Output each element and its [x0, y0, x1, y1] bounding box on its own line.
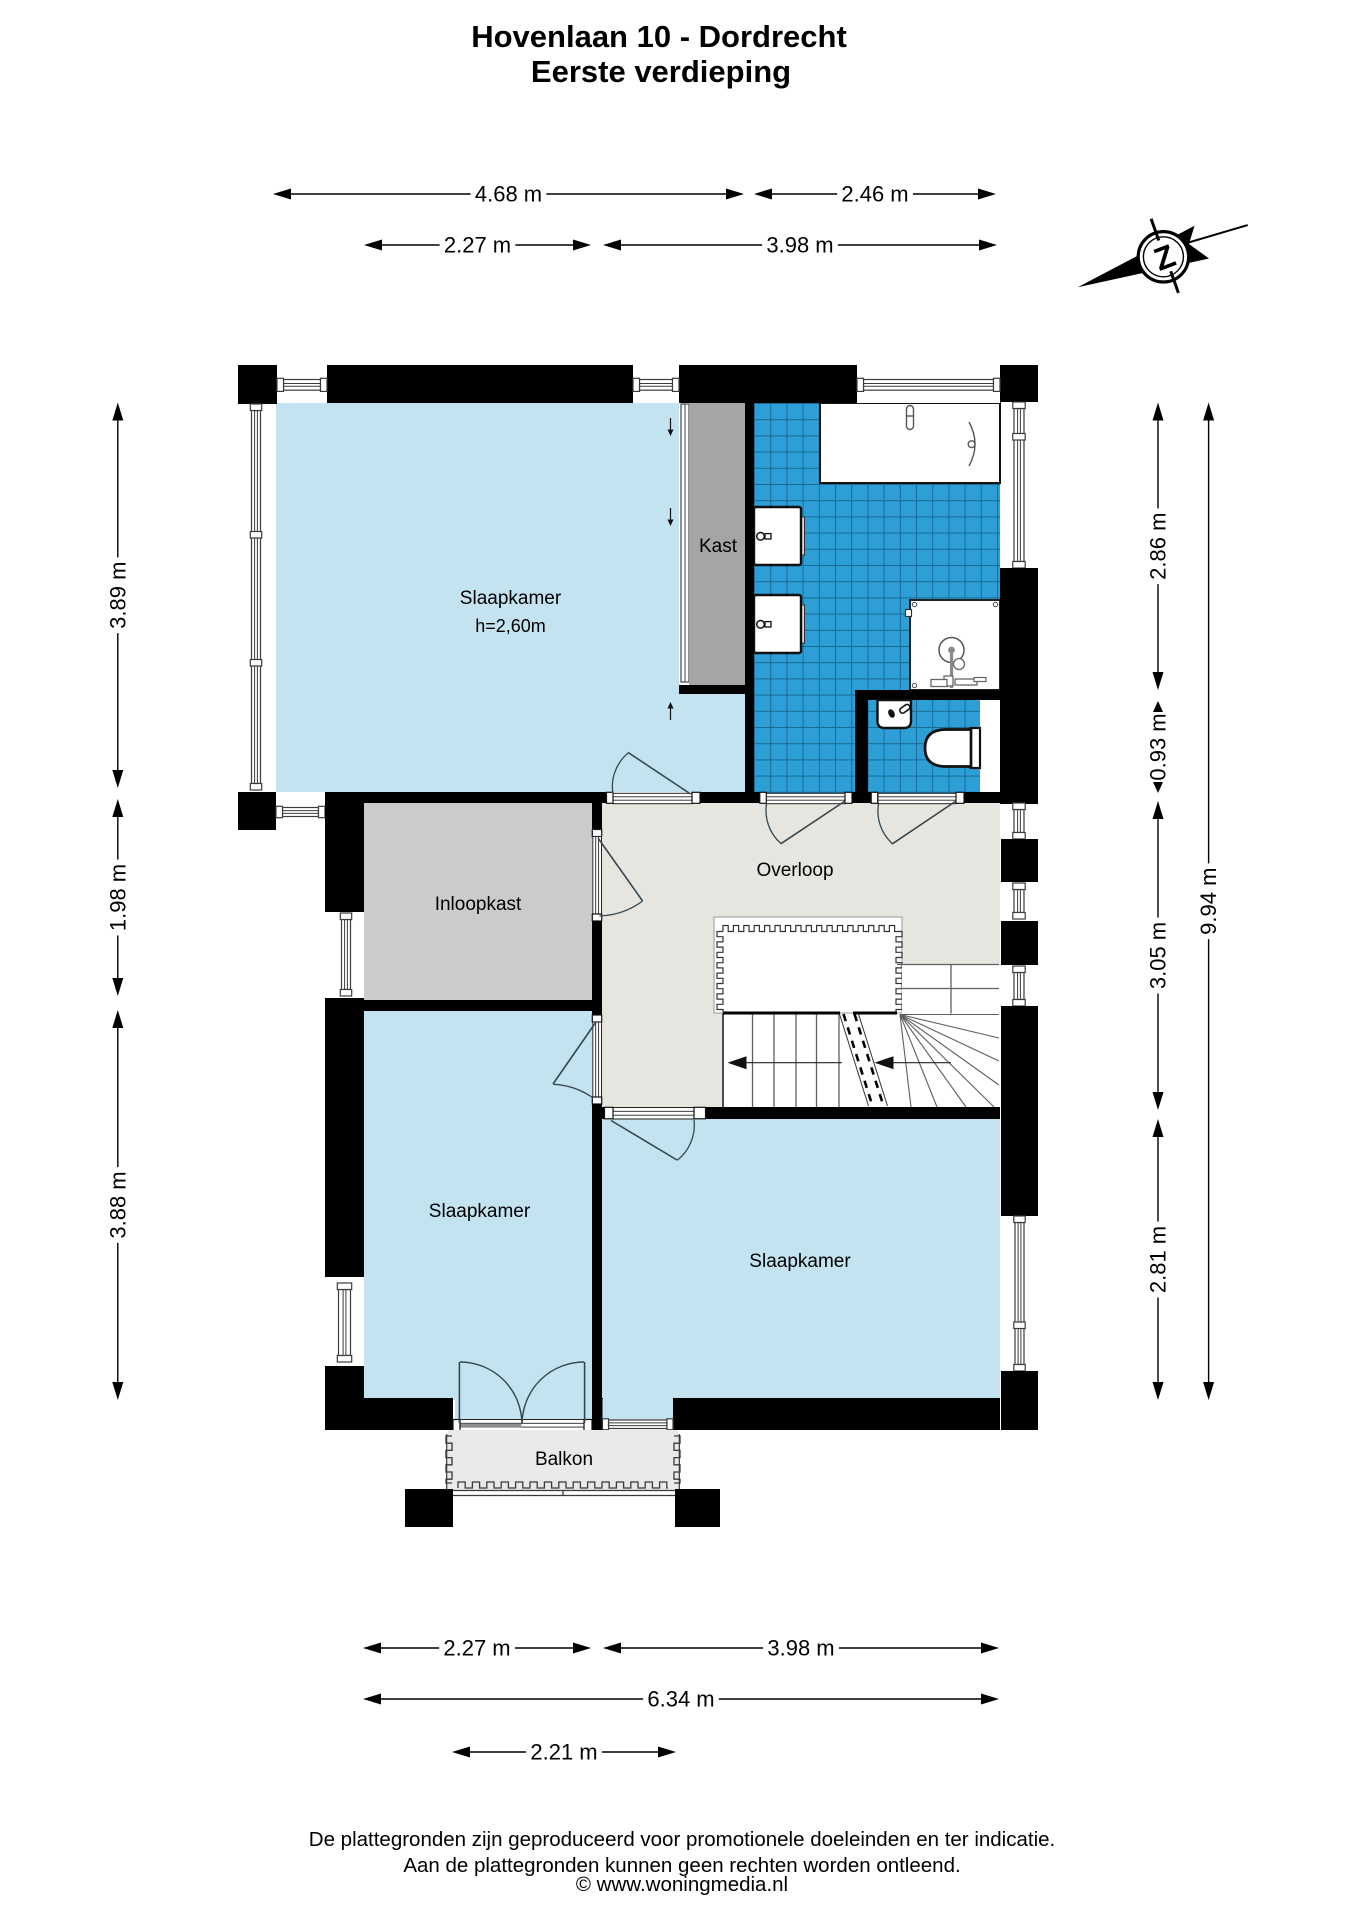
svg-text:Hovenlaan 10 - Dordrecht: Hovenlaan 10 - Dordrecht — [471, 19, 847, 54]
svg-text:3.98 m: 3.98 m — [766, 233, 833, 258]
svg-text:3.89 m: 3.89 m — [105, 562, 130, 629]
svg-text:h=2,60m: h=2,60m — [475, 616, 546, 636]
svg-text:3.98 m: 3.98 m — [767, 1636, 834, 1661]
svg-text:0.93 m: 0.93 m — [1146, 713, 1171, 780]
svg-text:Balkon: Balkon — [535, 1449, 593, 1470]
svg-text:Slaapkamer: Slaapkamer — [460, 588, 562, 609]
svg-text:Slaapkamer: Slaapkamer — [429, 1201, 531, 1222]
svg-text:Eerste verdieping: Eerste verdieping — [531, 54, 791, 89]
svg-text:Kast: Kast — [699, 536, 738, 557]
svg-text:4.68 m: 4.68 m — [475, 182, 542, 207]
svg-text:3.88 m: 3.88 m — [105, 1171, 130, 1238]
svg-text:1.98 m: 1.98 m — [105, 864, 130, 931]
svg-text:© www.woningmedia.nl: © www.woningmedia.nl — [576, 1873, 788, 1896]
svg-text:2.27 m: 2.27 m — [444, 233, 511, 258]
svg-text:Inloopkast: Inloopkast — [435, 894, 522, 915]
svg-text:9.94 m: 9.94 m — [1196, 868, 1221, 935]
svg-text:De plattegronden zijn geproduc: De plattegronden zijn geproduceerd voor … — [309, 1828, 1055, 1851]
svg-text:3.05 m: 3.05 m — [1146, 922, 1171, 989]
svg-text:6.34 m: 6.34 m — [647, 1687, 714, 1712]
svg-text:2.86 m: 2.86 m — [1146, 513, 1171, 580]
svg-text:2.81 m: 2.81 m — [1146, 1226, 1171, 1293]
svg-text:Slaapkamer: Slaapkamer — [749, 1251, 851, 1272]
svg-text:2.46 m: 2.46 m — [841, 182, 908, 207]
svg-text:2.21 m: 2.21 m — [530, 1740, 597, 1765]
svg-text:Overloop: Overloop — [756, 860, 833, 881]
svg-text:2.27 m: 2.27 m — [443, 1636, 510, 1661]
